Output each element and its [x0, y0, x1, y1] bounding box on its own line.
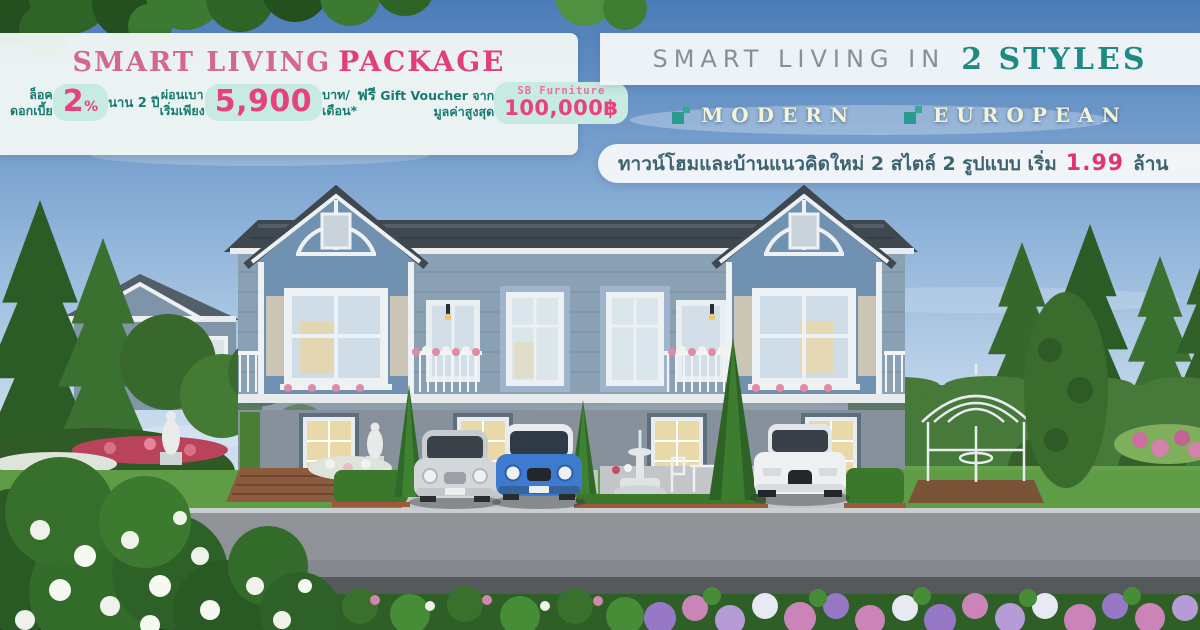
promo-title: SMART LIVINGPACKAGE: [0, 44, 578, 76]
voucher-text-line1: Gift Voucher จาก: [380, 88, 494, 103]
installment-label-line2: เริ่มเพียง: [160, 103, 205, 119]
double-square-icon: [904, 106, 922, 124]
interest-label: ล็อค ดอกเบี้ย: [10, 87, 53, 118]
tagline-pill: ทาวน์โฮมและบ้านแนวคิดใหม่ 2 สไตล์ 2 รูปแ…: [598, 144, 1200, 183]
voucher-label: ฟรี Gift Voucher จาก มูลค่าสูงสุด: [357, 86, 494, 120]
voucher-label-line1: ฟรี Gift Voucher จาก: [357, 86, 494, 105]
styles-row: MODERN EUROPEAN: [600, 97, 1200, 133]
voucher-text-line2: มูลค่าสูงสุด: [357, 104, 494, 120]
installment-unit-line2: เดือน*: [322, 103, 357, 119]
headline-regular: SMART LIVING IN: [652, 45, 945, 73]
style-label-modern: MODERN: [701, 103, 856, 127]
banner: SMART LIVINGPACKAGE ล็อค ดอกเบี้ย 2% นาน…: [0, 0, 1200, 630]
installment-label: ผ่อนเบา เริ่มเพียง: [160, 87, 205, 118]
interest-label-line1: ล็อค: [10, 87, 53, 103]
blue-mini-car: [492, 424, 586, 509]
tower-window-right: [734, 288, 876, 390]
promo-panel: SMART LIVINGPACKAGE ล็อค ดอกเบี้ย 2% นาน…: [0, 33, 578, 155]
promo-title-regular: SMART LIVING: [73, 47, 332, 78]
installment-value: 5,900: [215, 84, 312, 119]
tagline-unit: ล้าน: [1133, 149, 1168, 179]
tagline-price: 1.99: [1066, 151, 1124, 176]
styles-headline-bar: SMART LIVING IN 2 STYLES: [600, 33, 1200, 85]
interest-rate-unit: %: [84, 99, 98, 115]
interest-rate-badge: 2%: [53, 84, 108, 121]
installment-unit-line1: บาท/: [322, 87, 357, 103]
promo-title-bold: PACKAGE: [338, 45, 505, 78]
style-label-european: EUROPEAN: [933, 103, 1128, 127]
interest-duration: นาน 2 ปี: [108, 92, 159, 113]
voucher-free: ฟรี: [357, 86, 376, 104]
vine-tree: [1024, 292, 1108, 488]
installment-badge: 5,900: [205, 84, 322, 121]
interest-rate-value: 2: [63, 84, 84, 119]
tower-window-left: [266, 288, 408, 390]
interest-label-line2: ดอกเบี้ย: [10, 103, 53, 119]
double-square-icon: [672, 106, 690, 124]
style-item-european: EUROPEAN: [904, 103, 1128, 127]
voucher-brand: SB Furniture: [504, 86, 618, 97]
installment-label-line1: ผ่อนเบา: [160, 87, 205, 103]
style-item-modern: MODERN: [672, 103, 856, 127]
tagline-text: ทาวน์โฮมและบ้านแนวคิดใหม่ 2 สไตล์ 2 รูปแ…: [618, 149, 1057, 179]
headline-accent: 2 STYLES: [961, 42, 1147, 77]
promo-facts: ล็อค ดอกเบี้ย 2% นาน 2 ปี ผ่อนเบา เริ่มเ…: [0, 79, 578, 124]
installment-unit: บาท/ เดือน*: [322, 87, 357, 118]
silver-mini-car: [409, 430, 501, 509]
